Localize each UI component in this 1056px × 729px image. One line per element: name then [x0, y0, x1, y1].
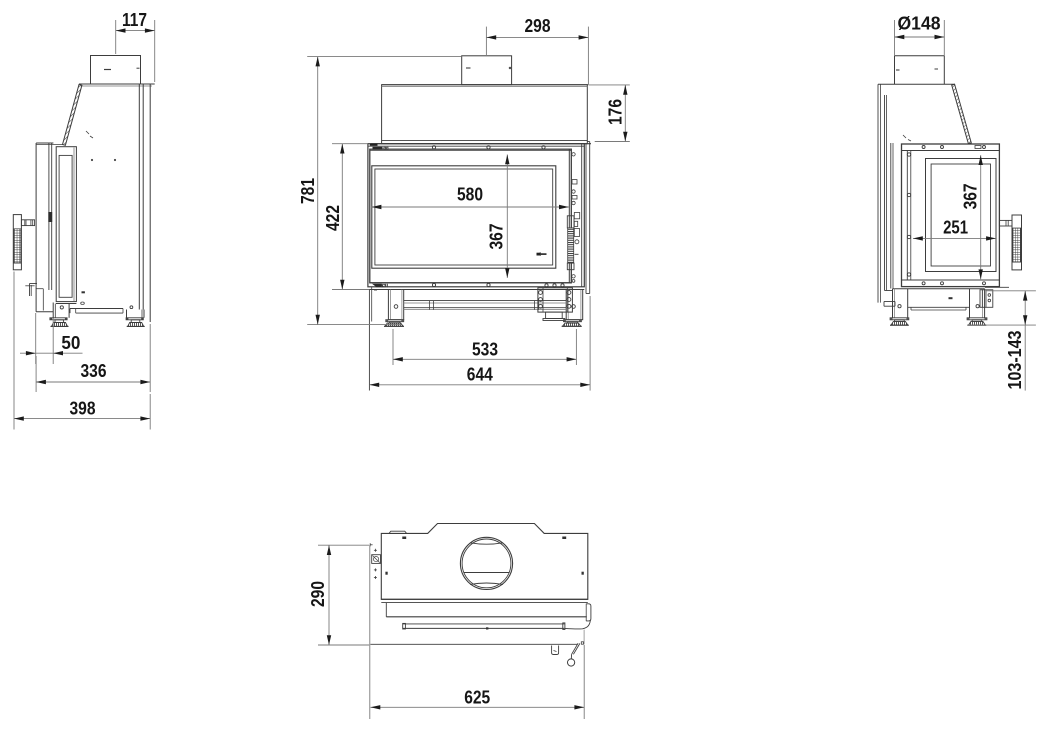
- svg-text:422: 422: [322, 205, 343, 231]
- svg-text:644: 644: [467, 363, 494, 384]
- svg-text:103-143: 103-143: [1004, 331, 1025, 390]
- svg-text:Ø148: Ø148: [898, 13, 941, 34]
- svg-text:117: 117: [122, 9, 147, 30]
- svg-text:580: 580: [457, 184, 483, 205]
- svg-text:336: 336: [81, 360, 107, 381]
- svg-text:176: 176: [605, 99, 626, 125]
- svg-text:533: 533: [472, 338, 498, 359]
- svg-text:290: 290: [307, 581, 328, 607]
- svg-text:781: 781: [297, 178, 318, 204]
- svg-text:367: 367: [960, 183, 981, 209]
- svg-text:251: 251: [943, 217, 968, 238]
- svg-text:367: 367: [486, 224, 507, 250]
- svg-text:50: 50: [61, 332, 80, 353]
- svg-text:398: 398: [70, 397, 96, 418]
- svg-text:298: 298: [525, 15, 551, 36]
- svg-text:625: 625: [464, 686, 490, 707]
